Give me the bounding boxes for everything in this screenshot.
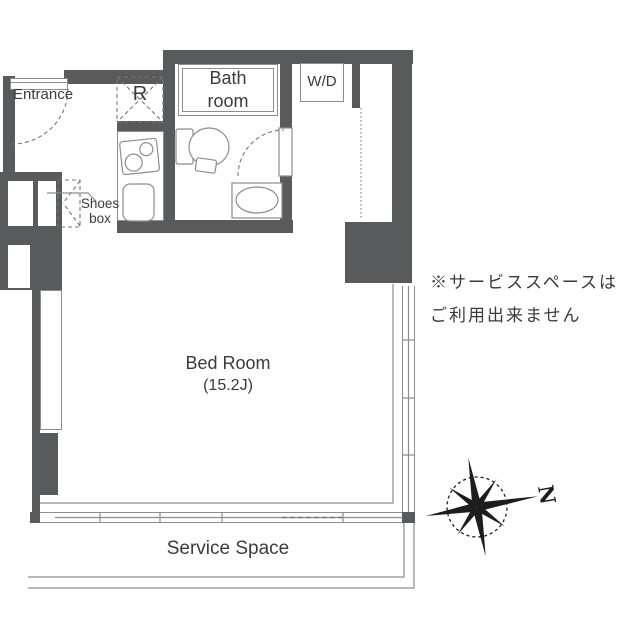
window-mullions (55, 286, 415, 523)
compass-star (417, 447, 547, 565)
wall-bath-right-upper (280, 57, 292, 129)
wall-kitchen-bath-divider (163, 64, 175, 233)
service-space-note: ※サービススペースは ご利用出来ません (430, 266, 618, 332)
bathroom-label-line2: room (178, 90, 278, 113)
toilet (176, 128, 229, 173)
washbasin (232, 183, 282, 218)
bathroom-door (279, 128, 292, 176)
shoes-box-label: Shoes box (74, 196, 126, 226)
wall-wet-area-bottom (117, 220, 293, 233)
washer-dryer-label: W/D (300, 62, 344, 102)
bathroom-label-line1: Bath (178, 67, 278, 90)
entrance-label: Entrance (13, 86, 73, 103)
window-band-right (402, 286, 415, 512)
wall-recess-bedroom-left (40, 290, 62, 430)
floor-plan: N Entrance R Bath room W/D Shoes box Bed… (0, 0, 640, 640)
bedroom-label: Bed Room (148, 353, 308, 374)
wall-bath-right-lower (280, 175, 292, 222)
compass-north-label: N (533, 483, 561, 506)
service-space-note-line2: ご利用出来ません (430, 299, 618, 332)
wall-corner-bottom-right (402, 512, 415, 523)
window-band-bottom (40, 512, 402, 523)
service-space-note-line1: ※サービススペースは (430, 266, 618, 299)
compass-rose: N (417, 443, 568, 565)
wall-left-pillar (32, 433, 58, 495)
bedroom-size-label: (15.2J) (148, 377, 308, 395)
wall-inset-lower (8, 245, 30, 288)
bathroom-door-swing-arc (238, 130, 284, 176)
shoes-box-unit-left (8, 181, 33, 226)
wall-wd-right-strip (352, 64, 360, 108)
shoes-box-label-line2: box (74, 211, 126, 226)
service-space-label: Service Space (118, 538, 338, 560)
wall-top-entrance (64, 70, 170, 84)
bathroom-label: Bath room (178, 67, 278, 113)
shoes-box-label-line1: Shoes (74, 196, 126, 211)
refrigerator-label: R (117, 83, 163, 106)
shoes-box-unit-right (38, 181, 56, 226)
wall-right-pillar (345, 222, 405, 283)
